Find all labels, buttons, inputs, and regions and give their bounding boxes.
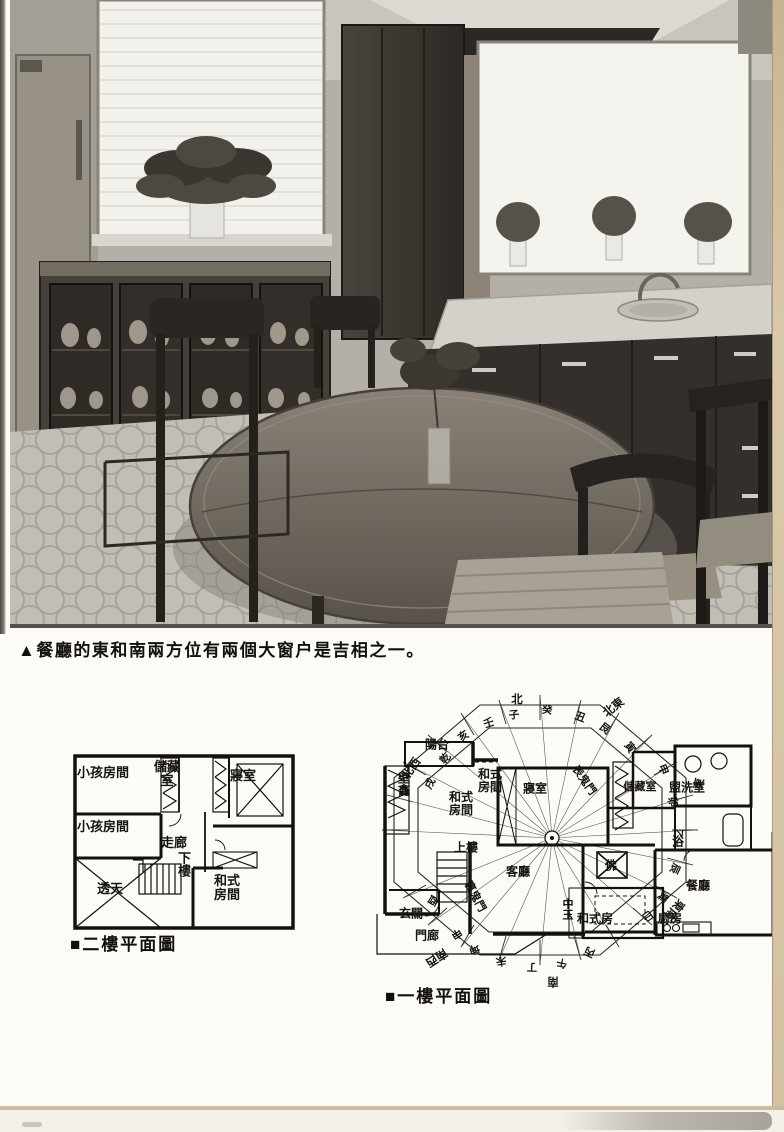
room-label-porch-1f: 門廊 xyxy=(415,930,439,943)
compass-dir-ne: 北東 xyxy=(601,696,627,720)
room-label-japanese-2f: 和式房間 xyxy=(212,874,241,902)
compass-dir-n: 北 xyxy=(511,694,523,706)
plan-1f-title: ■一樓平面圖 xyxy=(385,982,492,1007)
compass-ring-char: 乙 xyxy=(671,828,683,840)
scan-smudge-small xyxy=(22,1122,42,1127)
label-back-demon-gate: 裏鬼門 xyxy=(461,880,487,915)
compass-ring-char: 未 xyxy=(495,954,507,967)
room-label-dining-1f: 餐廳 xyxy=(686,880,710,893)
compass-ring-char: 寅 xyxy=(621,740,636,755)
compass-ring-char: 甲 xyxy=(655,763,669,777)
compass-ring-char: 丁 xyxy=(527,960,538,972)
room-label-bedroom-1f: 寢室 xyxy=(523,783,547,796)
compass-dir-s: 南 xyxy=(547,975,559,987)
room-label-kids1-2f: 小孩房間 xyxy=(77,766,129,780)
room-label-bedroom-2f: 寢室 xyxy=(230,769,256,783)
label-front-demon-gate: 表鬼門 xyxy=(569,764,598,798)
compass-ring-char: 艮 xyxy=(596,721,611,736)
room-label-japanese-a-1f: 和式房間 xyxy=(477,768,504,794)
compass-ring-char: 辰 xyxy=(667,861,682,875)
compass-ring-char: 卯 xyxy=(666,796,679,808)
compass-ring-char: 乾 xyxy=(438,751,453,766)
room-label-altar-1f: 佛 xyxy=(605,860,617,873)
label-center-pillar-1f: 中玉 xyxy=(560,898,572,920)
compass-ring-char: 壬 xyxy=(482,717,495,731)
compass-ring-char: 申 xyxy=(449,925,464,940)
compass-ring-char: 癸 xyxy=(541,705,553,717)
room-label-stairs-down-2f: 下樓 xyxy=(176,851,190,877)
room-label-balcony-1f: 陽台 xyxy=(425,739,449,752)
compass-ring-char: 丙 xyxy=(583,944,597,959)
scanned-book-page: ▲餐廳的東和南兩方位有兩個大窗户是吉相之一。 xyxy=(0,0,784,1132)
compass-ring-char: 丑 xyxy=(573,711,587,725)
compass-ring-char: 巽 xyxy=(654,888,669,903)
plan-2f-title: ■二樓平面圖 xyxy=(70,930,177,955)
page-edge-right xyxy=(772,0,784,1132)
scan-smudge xyxy=(560,1112,772,1130)
compass-ring-char: 酉 xyxy=(424,893,439,908)
compass-ring-char: 巳 xyxy=(639,907,654,922)
room-label-storage-1f: 儲藏室 xyxy=(624,782,657,794)
room-label-living-1f: 客廳 xyxy=(506,866,530,879)
room-label-storage-2f: 儲藏室 xyxy=(152,760,181,788)
room-label-stairs-up-1f: 上樓 xyxy=(454,842,478,855)
compass-ring-char: 亥 xyxy=(456,729,471,744)
compass-dir-sw: 南西 xyxy=(423,946,449,969)
room-label-void-2f: 透天 xyxy=(97,882,123,896)
compass-ring-char: 午 xyxy=(556,955,569,968)
compass-ring-char: 戌 xyxy=(424,777,439,792)
room-label-japanese-c-1f: 和式房 xyxy=(577,913,613,926)
room-label-corridor-2f: 走廊 xyxy=(161,836,187,850)
label-layer: 小孩房間 儲藏室 寢室 小孩房間 走廊 下樓 透天 和式房間 ■二樓平面圖 陽台… xyxy=(0,0,784,1132)
compass-ring-char: 坤 xyxy=(467,941,481,955)
room-label-entry-1f: 玄關 xyxy=(399,908,423,921)
compass-dir-e: 東 xyxy=(693,777,708,791)
room-label-kids2-2f: 小孩房間 xyxy=(77,820,129,834)
room-label-japanese-b-1f: 和式房間 xyxy=(448,791,475,817)
compass-ring-char: 子 xyxy=(508,710,519,722)
